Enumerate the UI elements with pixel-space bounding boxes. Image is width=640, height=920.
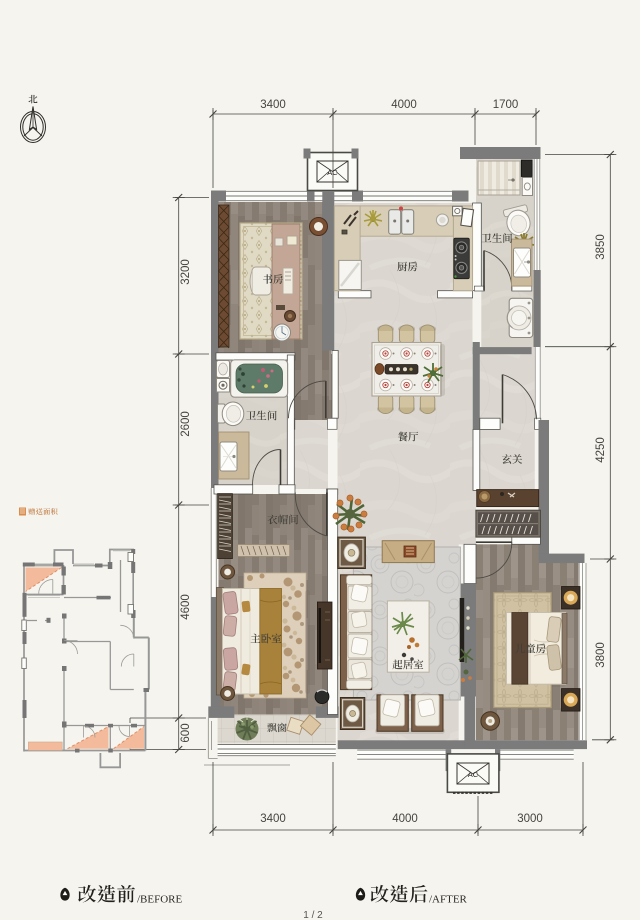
svg-text:4250: 4250 — [595, 437, 607, 463]
svg-text:1700: 1700 — [493, 99, 519, 111]
svg-text:3800: 3800 — [595, 642, 607, 668]
svg-text:/BEFORE: /BEFORE — [137, 894, 183, 906]
svg-text:3000: 3000 — [517, 813, 543, 825]
svg-text:2600: 2600 — [180, 411, 192, 437]
svg-text:AC: AC — [468, 770, 479, 779]
svg-text:3400: 3400 — [260, 99, 286, 111]
svg-text:4000: 4000 — [391, 99, 417, 111]
svg-text:3400: 3400 — [260, 813, 286, 825]
svg-text:600: 600 — [180, 723, 192, 742]
svg-text:3200: 3200 — [180, 259, 192, 285]
svg-text:3850: 3850 — [595, 234, 607, 260]
svg-text:/AFTER: /AFTER — [429, 894, 468, 906]
svg-text:4000: 4000 — [392, 813, 418, 825]
svg-text:4600: 4600 — [180, 594, 192, 620]
svg-text:1 / 2: 1 / 2 — [303, 910, 323, 920]
